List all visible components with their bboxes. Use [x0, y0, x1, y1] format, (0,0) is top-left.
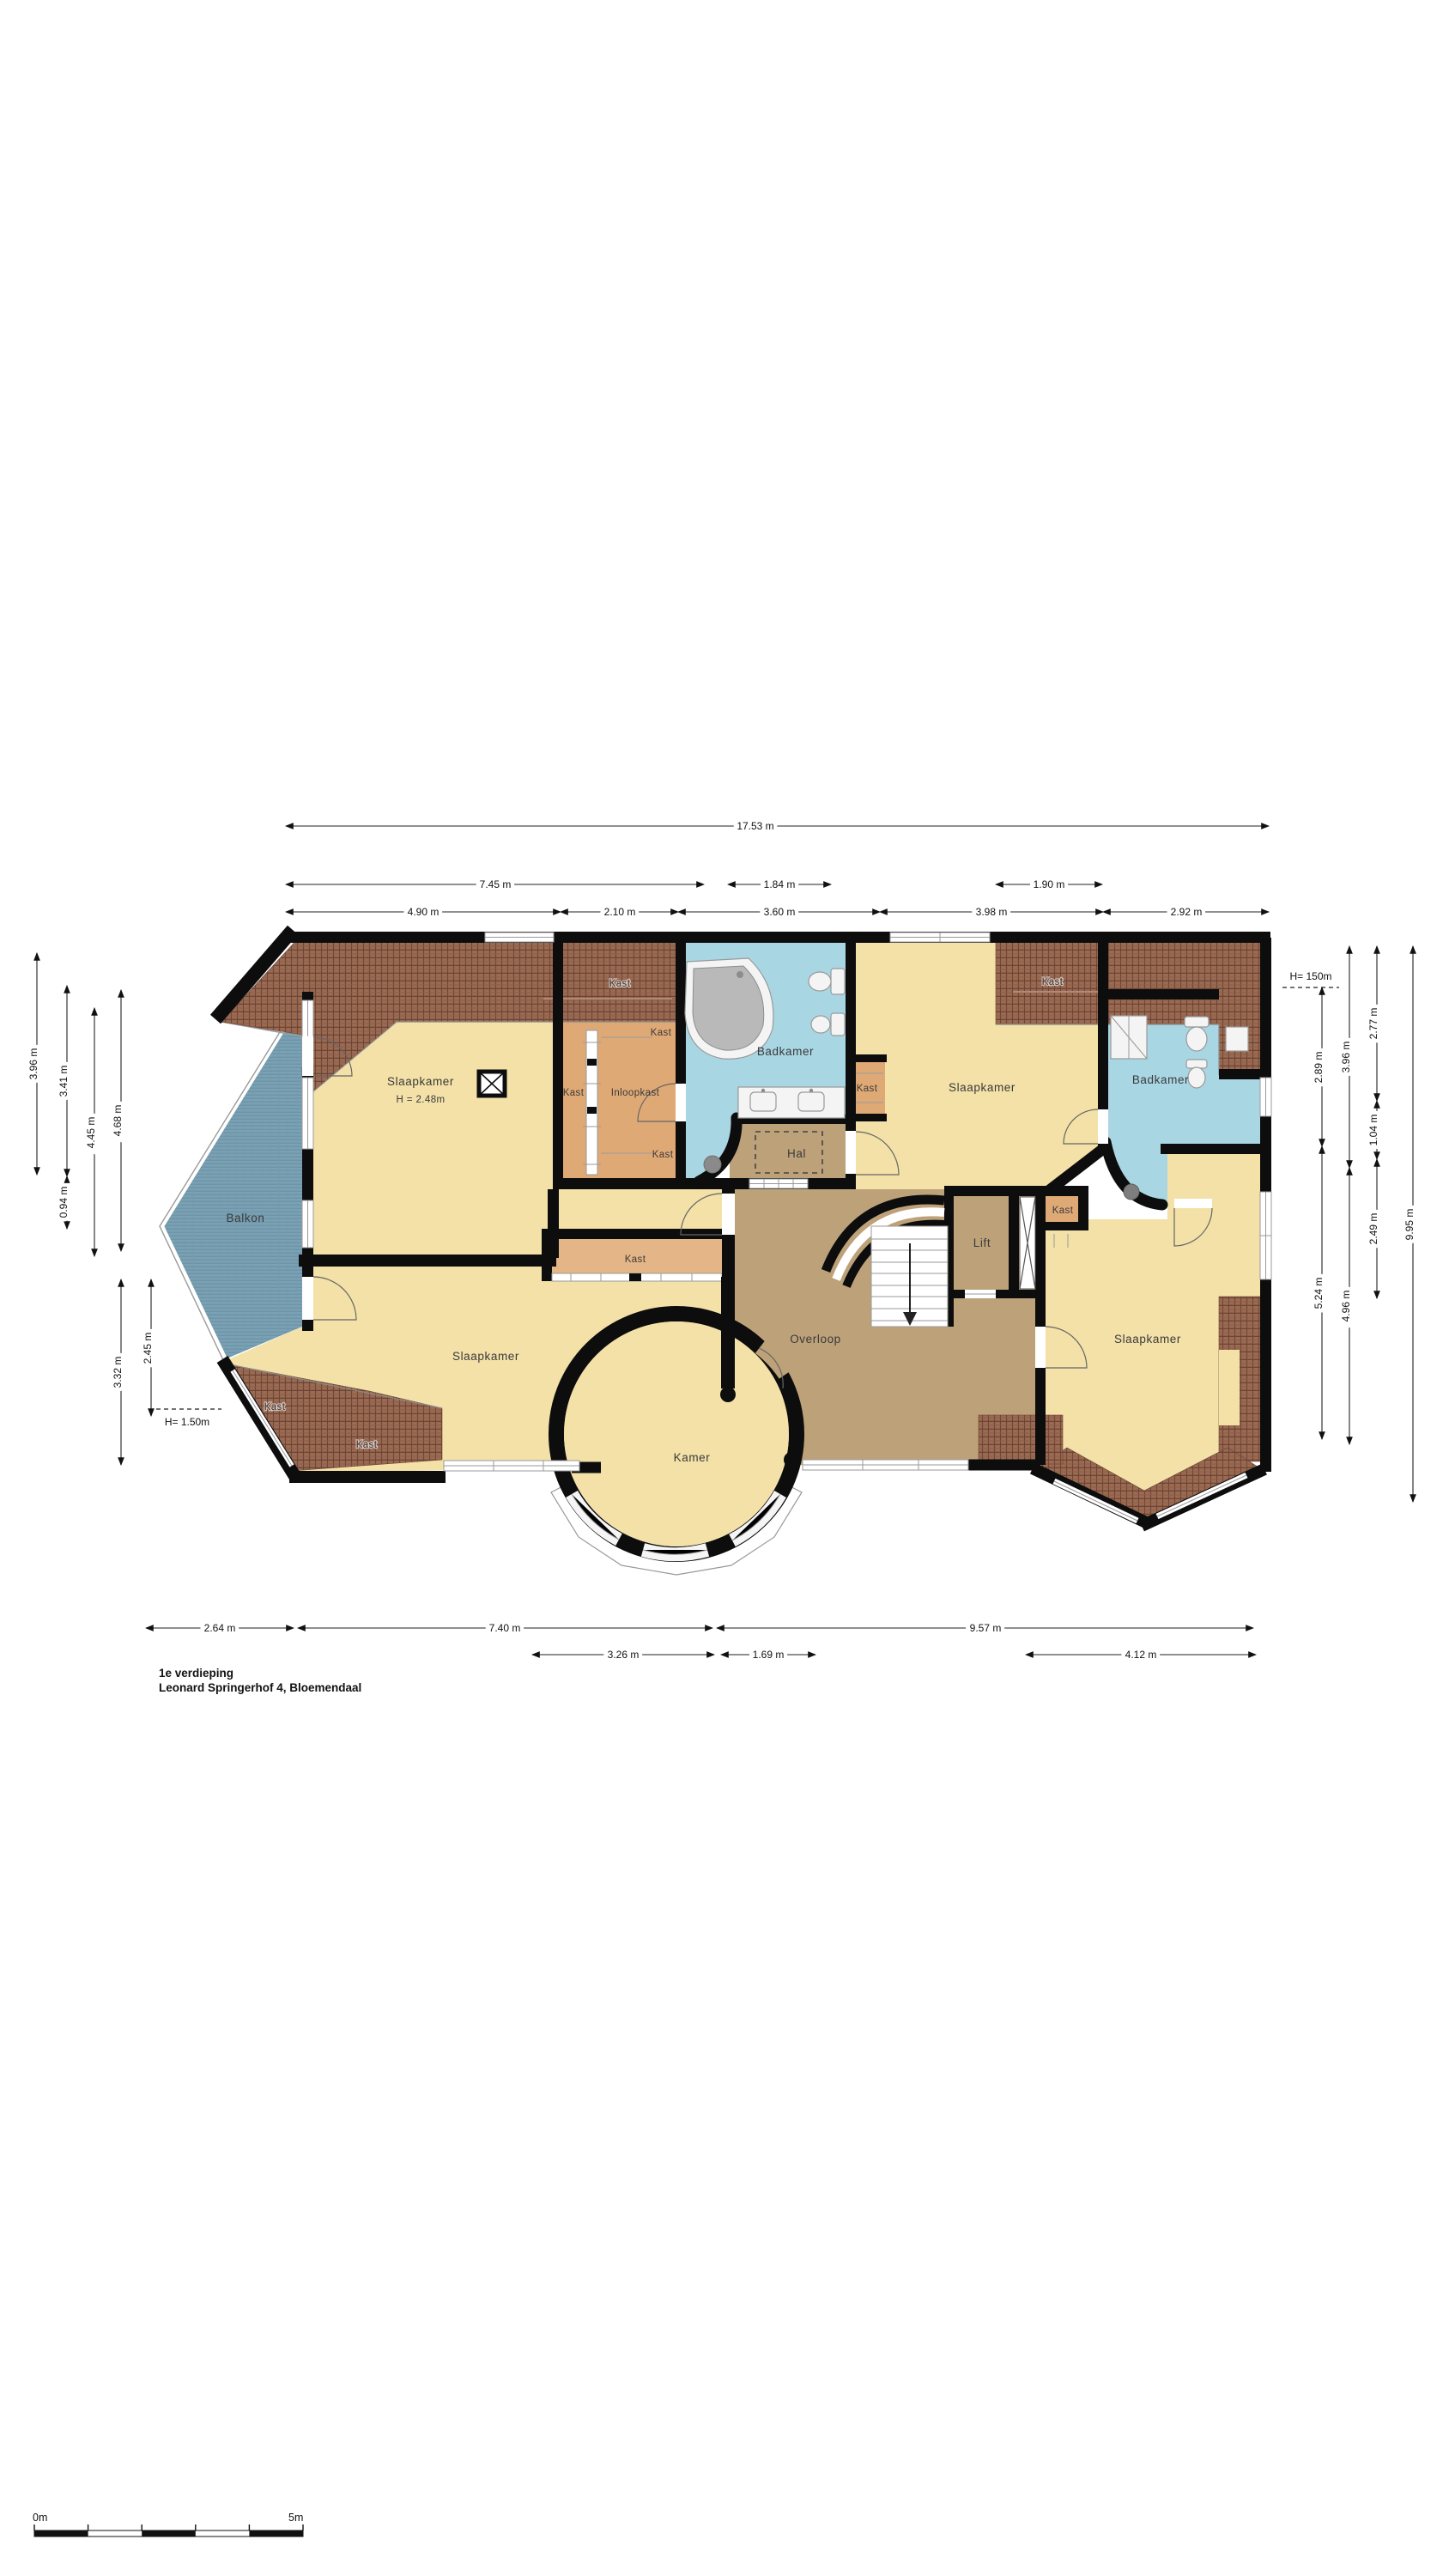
toilet-central-bowl [809, 972, 831, 991]
kamer-column-1 [720, 1387, 736, 1402]
label-kast-lift: Kast [1052, 1206, 1074, 1216]
kast-lift-wall-south [1040, 1222, 1088, 1230]
label-kast-island: Kast [625, 1255, 646, 1265]
corridor-shelf [586, 1030, 597, 1175]
label-kast-sw-1: Kast [264, 1402, 286, 1413]
dim-left-396: 3.96 m [27, 1048, 39, 1080]
dim-top-490: 4.90 m [408, 906, 440, 918]
sink-right [1226, 1027, 1248, 1051]
vanity-tap-2 [809, 1089, 813, 1092]
door-gap-overloop-se [1035, 1327, 1046, 1368]
label-slaapkamer-se: Slaapkamer [1114, 1333, 1181, 1346]
toilet-right-bowl [1186, 1027, 1207, 1051]
scale-bar-seg1 [34, 2530, 88, 2537]
wall-corridor-west [553, 938, 563, 1189]
wall-sw-bed-north-stub [548, 1189, 559, 1258]
door-gap-bath-se [1174, 1199, 1212, 1208]
drain-right [1124, 1184, 1139, 1200]
bidet-right-bowl [1188, 1067, 1205, 1088]
label-inloopkast: Inloopkast [611, 1088, 660, 1098]
label-kast-sw-2: Kast [356, 1440, 378, 1450]
label-kast-cubby-low: Kast [652, 1150, 674, 1160]
wall-corridor-east [676, 938, 686, 1189]
scale-label-start: 0m [33, 2512, 47, 2524]
label-badkamer-right: Badkamer [1132, 1073, 1189, 1086]
wall-sw-bed-north [299, 1255, 556, 1267]
dim-left-height: H= 1.50m [165, 1416, 209, 1428]
dim-top-745: 7.45 m [480, 878, 512, 890]
floorplan-canvas: Slaapkamer H = 2.48m Slaapkamer Slaapkam… [0, 0, 1449, 2576]
scale-bar: 0m 5m [33, 2512, 303, 2537]
kamer-floor [564, 1321, 789, 1546]
door-gap-sw-overloop [722, 1194, 735, 1235]
dim-right-249: 2.49 m [1367, 1213, 1379, 1245]
dim-bottom-740: 7.40 m [489, 1622, 521, 1634]
wall-se-bed-west [1035, 1186, 1046, 1465]
vanity-basin-1 [750, 1092, 776, 1111]
title-address: Leonard Springerhof 4, Bloemendaal [159, 1681, 361, 1694]
label-slaapkamer-sw: Slaapkamer [452, 1350, 519, 1363]
label-kast-ne-cubby: Kast [857, 1084, 878, 1094]
dim-top-184: 1.84 m [764, 878, 796, 890]
dim-bottom-326: 3.26 m [608, 1649, 640, 1661]
label-hal: Hal [787, 1147, 806, 1160]
dim-left-245: 2.45 m [142, 1333, 154, 1364]
wall-lift-north [948, 1186, 1088, 1196]
label-slaapkamer-ne: Slaapkamer [949, 1081, 1016, 1094]
dim-bottom-412: 4.12 m [1125, 1649, 1157, 1661]
label-balkon: Balkon [227, 1212, 265, 1224]
wall-lift-south [948, 1290, 1046, 1298]
scale-bar-ticks [34, 2524, 303, 2530]
dim-right-396: 3.96 m [1340, 1042, 1352, 1073]
dim-top-190: 1.90 m [1034, 878, 1065, 890]
wall-se-bed-north [1161, 1144, 1267, 1154]
title-floor: 1e verdieping [159, 1667, 233, 1680]
dim-left-468: 4.68 m [112, 1105, 124, 1137]
dim-right-height: H= 150m [1289, 970, 1331, 982]
wall-lift-east [1009, 1196, 1019, 1298]
scale-bar-seg3 [142, 2530, 196, 2537]
roof-se-column-notch [1219, 1350, 1240, 1425]
dim-bottom-169: 1.69 m [753, 1649, 785, 1661]
bidet-central-bowl [811, 1016, 830, 1033]
kamer-wall-stub [721, 1277, 735, 1388]
roof-se-west-patch [979, 1415, 1063, 1464]
dim-bottom-264: 2.64 m [204, 1622, 236, 1634]
balcony [160, 996, 302, 1362]
dim-left-332: 3.32 m [112, 1357, 124, 1388]
dim-left-094: 0.94 m [58, 1187, 70, 1218]
label-kamer: Kamer [674, 1451, 711, 1464]
corridor-shelf-clamp2 [587, 1107, 597, 1114]
kast-island-wall-top [542, 1229, 732, 1239]
kamer-column-2 [784, 1452, 799, 1467]
dim-right-104: 1.04 m [1367, 1115, 1379, 1146]
title-block: 1e verdieping Leonard Springerhof 4, Blo… [159, 1667, 361, 1694]
scale-label-end: 5m [288, 2512, 303, 2524]
label-kast-cubby-top: Kast [651, 1028, 672, 1038]
vanity-tap-1 [761, 1089, 765, 1092]
door-gap-balcony-nw [302, 1036, 313, 1076]
toilet-central-tank [831, 969, 845, 994]
door-gap-balcony-sw [302, 1277, 313, 1320]
dim-bottom-957: 9.57 m [970, 1622, 1002, 1634]
vanity-basin-2 [798, 1092, 824, 1111]
scale-bar-seg5 [249, 2530, 303, 2537]
dim-left-341: 3.41 m [58, 1066, 70, 1097]
nook-basin [704, 1156, 721, 1173]
dim-top-292: 2.92 m [1171, 906, 1203, 918]
door-gap-ne-bath [1098, 1109, 1108, 1144]
whirlpool-inner [693, 966, 764, 1050]
floorplan-page: Slaapkamer H = 2.48m Slaapkamer Slaapkam… [0, 0, 1449, 2576]
wall-right-bath-north [1108, 989, 1219, 999]
dim-right-496: 4.96 m [1340, 1291, 1352, 1322]
label-overloop: Overloop [790, 1333, 841, 1346]
label-kast-roof-ne: Kast [1042, 977, 1064, 987]
label-kast-corridor: Kast [563, 1088, 585, 1098]
dim-top-210: 2.10 m [604, 906, 636, 918]
label-kast-roof-nw: Kast [609, 979, 631, 989]
corridor-shelf-clamp1 [587, 1059, 597, 1066]
dim-right-524: 5.24 m [1313, 1278, 1325, 1309]
door-gap-inloopkast [676, 1084, 686, 1121]
bidet-central-tank [831, 1013, 845, 1036]
balcony-deck [161, 998, 302, 1359]
dim-right-277: 2.77 m [1367, 1008, 1379, 1040]
label-badkamer-central: Badkamer [757, 1045, 814, 1058]
label-slaapkamer-nw: Slaapkamer [387, 1075, 454, 1088]
door-gap-hal-ne [846, 1131, 856, 1174]
dim-right-289: 2.89 m [1313, 1052, 1325, 1084]
kast-island-clamp [629, 1273, 641, 1281]
dim-right-995: 9.95 m [1404, 1209, 1416, 1241]
label-lift: Lift [973, 1236, 991, 1249]
whirlpool-faucet [737, 971, 743, 978]
wall-right-bath-roofedge [1219, 1069, 1264, 1079]
dim-left-445: 4.45 m [85, 1117, 97, 1149]
dim-top-360: 3.60 m [764, 906, 796, 918]
dim-top-398: 3.98 m [976, 906, 1008, 918]
dim-top-total: 17.53 m [737, 820, 773, 832]
toilet-right-tank [1185, 1017, 1209, 1027]
wall-top [286, 932, 1270, 943]
label-slaapkamer-nw-height: H = 2.48m [397, 1095, 446, 1105]
